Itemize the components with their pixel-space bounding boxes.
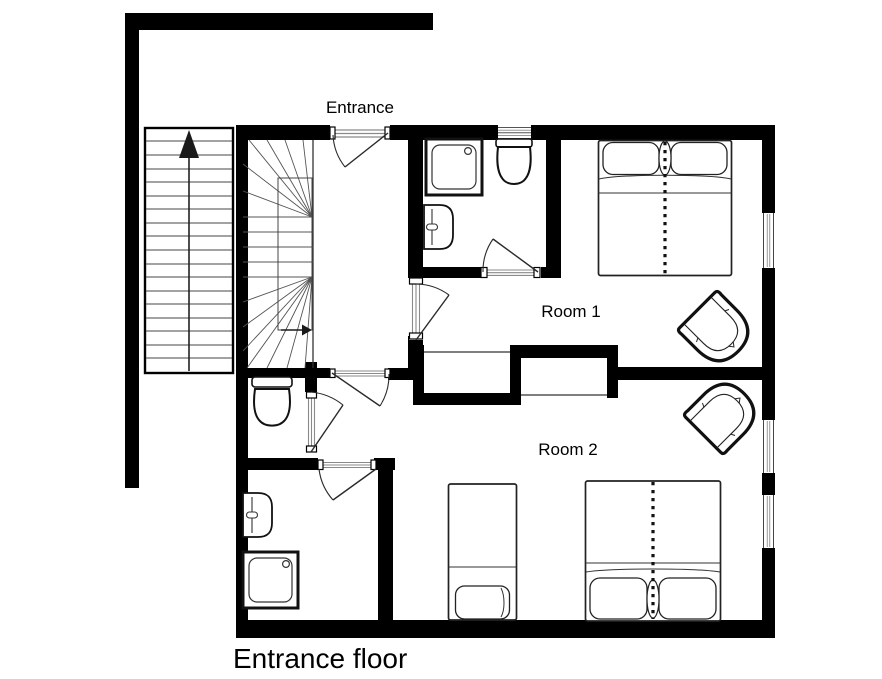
- room2-window-upper-icon: [762, 420, 775, 473]
- exterior-wall-top: [125, 13, 433, 30]
- wc-fixtures: [252, 377, 292, 426]
- entrance-label: Entrance: [326, 98, 394, 117]
- wc-wall-stub: [305, 362, 317, 392]
- wall-right-c: [762, 473, 775, 495]
- wall-right-b: [762, 268, 775, 420]
- armchair-icon: [683, 374, 764, 455]
- exterior-staircase-icon: [145, 128, 233, 373]
- washbasin-icon: [243, 493, 272, 537]
- bathroom1-wall-right: [546, 125, 561, 278]
- double-bed-icon: [586, 481, 721, 621]
- toilet-icon: [496, 139, 532, 184]
- bathroom1-door-threshold: [481, 267, 541, 278]
- room2-window-lower-icon: [762, 495, 775, 548]
- wall-top-c: [531, 125, 775, 140]
- wall-right-a: [762, 125, 775, 213]
- bathroom1-fixtures: [424, 139, 532, 249]
- floor-title: Entrance floor: [233, 643, 407, 674]
- room1-door-threshold: [409, 278, 423, 340]
- room-divider-wall: [618, 367, 765, 380]
- entrance-door-threshold: [330, 127, 390, 140]
- wall-top-a: [236, 125, 330, 140]
- pillow-icon: [456, 586, 510, 619]
- room2-furniture: [449, 374, 765, 621]
- bathroom2-wall-top-a: [236, 458, 318, 470]
- floor-plan: Entrance Room 1 Room 2 Entrance floor: [0, 0, 882, 679]
- bathroom2-fixtures: [243, 493, 298, 608]
- interior-winder-staircase-icon: [243, 140, 313, 368]
- pillow-icon: [671, 143, 727, 175]
- hall-door-threshold: [330, 369, 390, 378]
- bathroom1-window-icon: [498, 126, 531, 140]
- bathroom2-wall-top-b: [374, 458, 395, 470]
- bathroom2-wall-right: [378, 458, 393, 620]
- shower-icon: [243, 552, 298, 608]
- hall-wall-right-a: [408, 125, 423, 278]
- room2-label: Room 2: [538, 440, 598, 459]
- shower-icon: [426, 139, 482, 195]
- closet1-wall-bottom: [413, 393, 521, 405]
- closet2-wall-right: [607, 345, 618, 398]
- exterior-wall-left: [125, 13, 139, 488]
- pillow-icon: [659, 578, 716, 619]
- wall-bottom: [236, 620, 775, 638]
- washbasin-icon: [424, 205, 453, 249]
- pillow-icon: [590, 578, 647, 619]
- bathroom2-door-swing-icon: [319, 469, 376, 500]
- wc-door-threshold: [306, 392, 317, 452]
- room1-window-icon: [762, 213, 775, 268]
- toilet-icon: [252, 377, 292, 426]
- pillow-icon: [603, 143, 659, 175]
- room1-furniture: [599, 141, 759, 372]
- closet2-wall-top: [510, 345, 618, 358]
- room1-label: Room 1: [541, 302, 601, 321]
- armchair-icon: [677, 290, 758, 371]
- single-bed-icon: [449, 484, 517, 620]
- right-arrow-icon: [302, 325, 312, 336]
- double-bed-icon: [599, 141, 732, 276]
- bathroom2-door-threshold: [318, 460, 376, 470]
